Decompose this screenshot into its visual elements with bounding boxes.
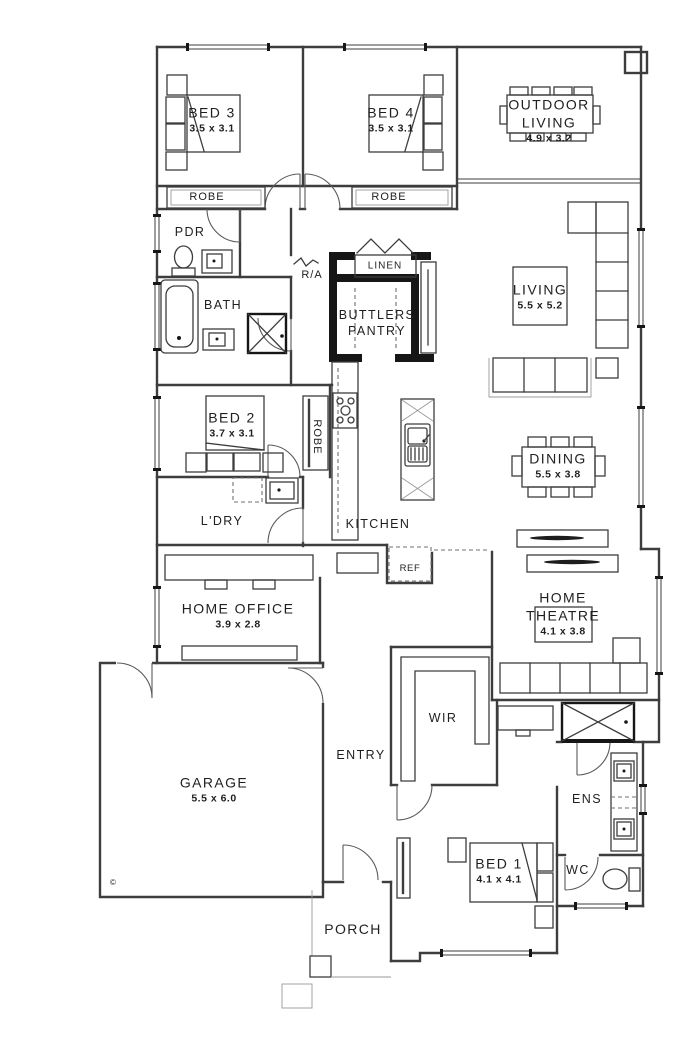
room-dims: 3.9 x 2.8 [182, 619, 295, 633]
room-name: DINING [529, 450, 586, 468]
room-label-bath: BATH [204, 297, 242, 313]
pdr-door [207, 209, 240, 242]
room-dims: 5.5 x 6.0 [180, 793, 248, 807]
room-label-living: LIVING 5.5 x 5.2 [513, 281, 567, 314]
room-label-bed1: BED 1 4.1 x 4.1 [475, 855, 522, 888]
room-name: BED 4 [367, 104, 414, 122]
room-label-garage: GARAGE 5.5 x 6.0 [180, 774, 248, 807]
room-label-outdoor-living: OUTDOOR LIVING 4.9 x 3.2 [506, 95, 592, 146]
ldry-door [268, 508, 303, 543]
appliance-tower-cabinet [421, 262, 436, 353]
room-label-robe3: ROBE [189, 190, 224, 204]
room-dims: 5.5 x 5.2 [513, 300, 567, 314]
sliding-door [457, 179, 641, 183]
washer-space [233, 478, 262, 502]
room-name: OUTDOOR LIVING [506, 95, 592, 131]
room-name: BUTTLERS PANTRY [337, 307, 417, 340]
exterior-walls [100, 47, 659, 961]
room-dims: 4.1 x 4.1 [475, 874, 522, 888]
ens-fixtures [562, 703, 637, 851]
room-label-kitchen: KITCHEN [346, 516, 411, 532]
annotation-return-air: R/A [301, 268, 322, 282]
kitchen-fixtures [332, 362, 434, 540]
bed1-door [397, 785, 432, 820]
cooktop [333, 393, 357, 428]
room-label-ens: ENS [572, 791, 602, 807]
copyright-mark: © [110, 878, 116, 888]
room-dims: 3.5 x 3.1 [188, 123, 235, 137]
bath-fixtures [161, 280, 286, 353]
ens-shower [562, 703, 634, 743]
kitchen-sink [405, 424, 430, 466]
room-label-dining: DINING 5.5 x 3.8 [529, 450, 586, 483]
room-name: LIVING [513, 281, 567, 299]
room-label-linen: LINEN [368, 260, 402, 273]
front-door [343, 845, 378, 880]
room-name: BED 2 [208, 409, 255, 427]
room-name: BED 3 [188, 104, 235, 122]
wc-fixtures [603, 868, 640, 891]
bed4-door [305, 174, 340, 209]
theatre-sofa [500, 663, 647, 693]
office-desk [165, 555, 313, 580]
porch-pillar [310, 956, 331, 977]
ldry-fixtures [233, 478, 298, 503]
floor-plan: BED 3 3.5 x 3.1 BED 4 3.5 x 3.1 OUTDOOR … [0, 0, 700, 1045]
room-label-pdr: PDR [175, 224, 206, 240]
garage-internal-door [116, 659, 152, 698]
bath-shower [248, 314, 286, 353]
room-label-wir: WIR [429, 710, 458, 726]
room-label-butlers-pantry: BUTTLERS PANTRY [337, 307, 417, 340]
room-dims: 3.5 x 3.1 [367, 123, 414, 137]
porch-structure [282, 890, 391, 1008]
room-name: BED 1 [475, 855, 522, 873]
hall-dresser [498, 706, 553, 730]
bed1-bedside-table [535, 906, 553, 928]
hall-cabinet [337, 553, 378, 573]
room-label-home-office: HOME OFFICE 3.9 x 2.8 [182, 600, 295, 633]
ra-arrow [294, 258, 318, 266]
corner-pillar [625, 52, 647, 73]
room-label-ldry: L'DRY [201, 513, 244, 529]
room-dims: 5.5 x 3.8 [529, 469, 586, 483]
garage-entry-door [288, 668, 327, 703]
bed3-door [265, 174, 300, 209]
room-label-bed2: BED 2 3.7 x 3.1 [208, 409, 255, 442]
room-label-bed4: BED 4 3.5 x 3.1 [367, 104, 414, 137]
room-name: HOME THEATRE [526, 588, 600, 624]
room-dims: 4.9 x 3.2 [506, 133, 592, 147]
office-shelf [182, 646, 297, 660]
room-label-robe4: ROBE [371, 190, 406, 204]
theatre-chaise [613, 638, 640, 663]
pdr-fixtures [172, 246, 232, 276]
room-label-wc: WC [566, 862, 590, 878]
room-name: GARAGE [180, 774, 248, 792]
room-label-bed3: BED 3 3.5 x 3.1 [188, 104, 235, 137]
room-label-home-theatre: HOME THEATRE 4.1 x 3.8 [526, 588, 600, 639]
room-dims: 3.7 x 3.1 [208, 428, 255, 442]
room-label-robe2: ROBE [310, 419, 324, 454]
annotation-fridge: REF [400, 563, 421, 575]
bed1-side-cabinet [448, 838, 466, 862]
room-label-porch: PORCH [324, 920, 382, 938]
room-name: HOME OFFICE [182, 600, 295, 618]
porch-step [282, 984, 312, 1008]
ens-door [577, 742, 610, 775]
island-bench [401, 399, 434, 500]
room-dims: 4.1 x 3.8 [526, 626, 600, 640]
room-label-entry: ENTRY [336, 747, 385, 763]
